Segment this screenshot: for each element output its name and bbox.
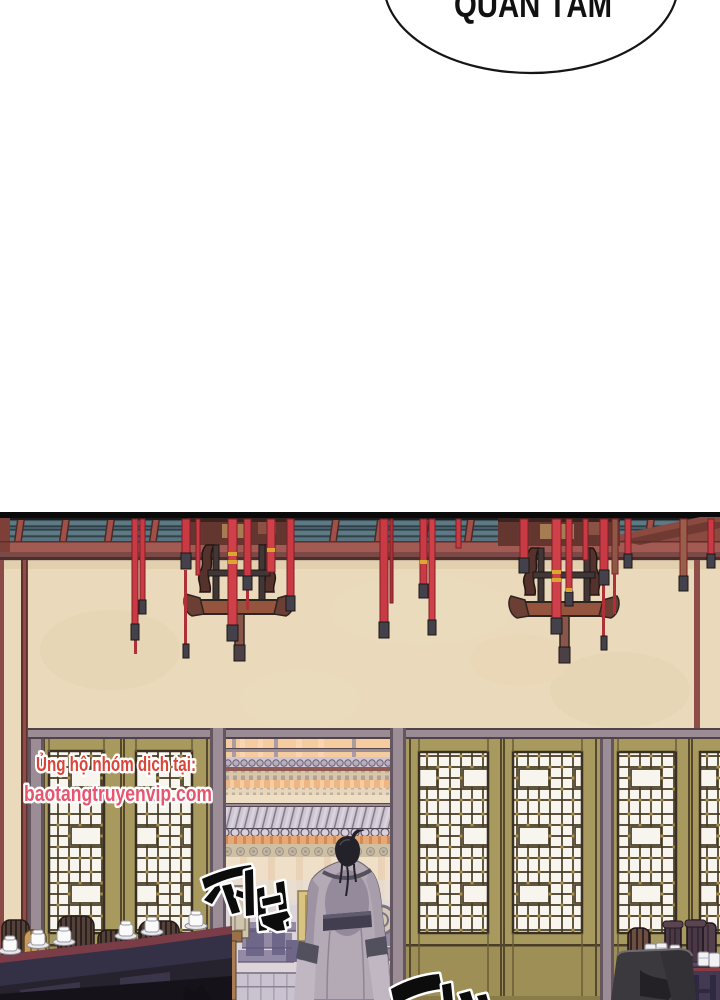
svg-text:baotangtruyenvip.com: baotangtruyenvip.com <box>24 781 212 806</box>
svg-text:Ủng hộ nhóm dịch tại:: Ủng hộ nhóm dịch tại: <box>36 752 196 776</box>
svg-text:QUAN TÂM: QUAN TÂM <box>454 0 612 25</box>
